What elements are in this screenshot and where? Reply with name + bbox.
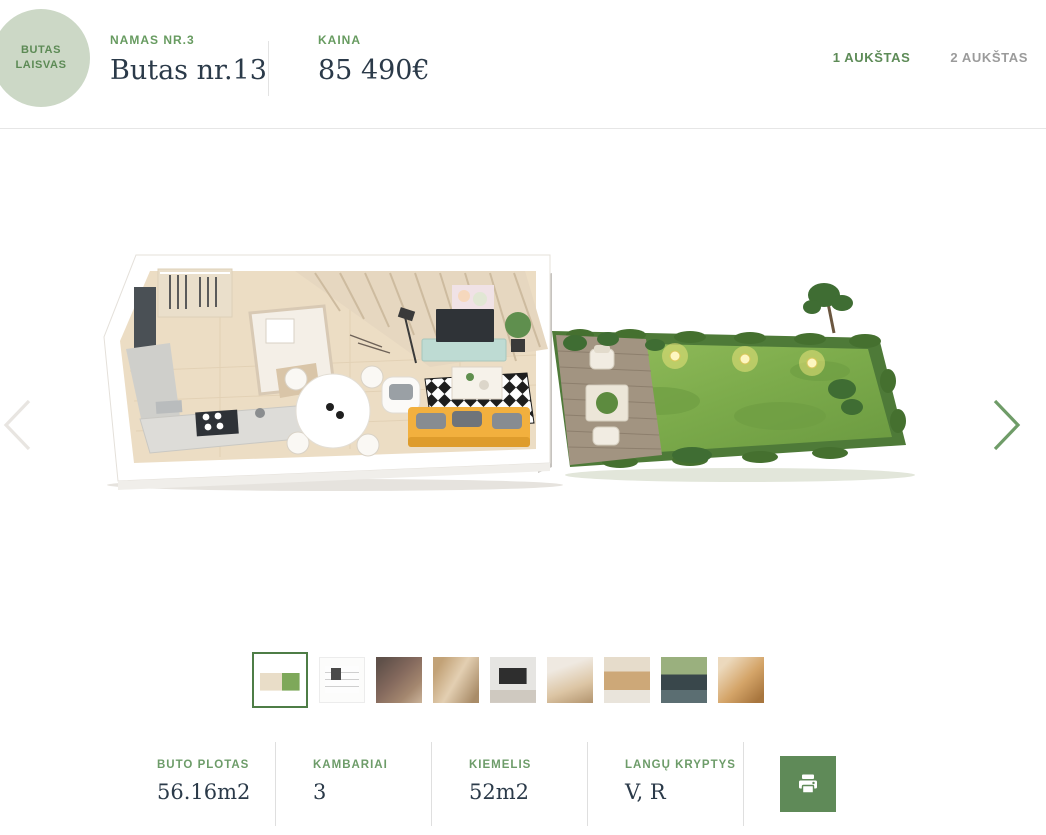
stats-row: BUTO PLOTAS 56.16m2 KAMBARIAI 3 KIEMELIS…	[120, 742, 1046, 826]
garden	[552, 283, 906, 468]
price-block: KAINA 85 490€	[318, 33, 430, 86]
stat-value: V, R	[625, 780, 743, 804]
carousel	[0, 129, 1046, 649]
header-divider	[268, 41, 269, 96]
prev-slide-button[interactable]	[0, 397, 34, 453]
stat-value: 52m2	[469, 780, 587, 804]
stat-label: KIEMELIS	[469, 759, 587, 771]
stat-label: BUTO PLOTAS	[157, 759, 275, 771]
wardrobe	[158, 269, 232, 317]
thumbnail-2[interactable]	[319, 657, 365, 703]
chevron-right-icon	[990, 397, 1024, 453]
thumbnail-6[interactable]	[547, 657, 593, 703]
stat-kambariai: KAMBARIAI 3	[276, 742, 432, 826]
thumbnail-strip	[0, 649, 1046, 711]
garden-deck	[556, 335, 662, 465]
house-label: NAMAS NR.3	[110, 33, 267, 47]
thumbnail-1-image	[258, 658, 302, 702]
floorplan-image	[100, 251, 915, 491]
stat-label: KAMBARIAI	[313, 759, 431, 771]
thumbnail-9[interactable]	[718, 657, 764, 703]
thumbnail-7[interactable]	[604, 657, 650, 703]
dining-table	[285, 366, 383, 456]
status-badge: BUTASLAISVAS	[0, 9, 90, 107]
floorplan-3d-render	[100, 251, 915, 491]
stat-kiemelis: KIEMELIS 52m2	[432, 742, 588, 826]
thumbnail-3[interactable]	[376, 657, 422, 703]
price-label: KAINA	[318, 33, 430, 47]
thumbnail-4[interactable]	[433, 657, 479, 703]
stat-value: 56.16m2	[157, 780, 275, 804]
next-slide-button[interactable]	[990, 397, 1024, 453]
apartment-floorplan	[104, 255, 550, 490]
chevron-left-icon	[0, 397, 34, 453]
stat-value: 3	[313, 780, 431, 804]
floor-tabs: 1 AUKŠTAS 2 AUKŠTAS	[833, 50, 1028, 65]
status-badge-text: BUTASLAISVAS	[15, 43, 66, 73]
page-title: Butas nr.13	[110, 55, 267, 86]
price-value: 85 490€	[318, 55, 430, 86]
page-header: BUTASLAISVAS NAMAS NR.3 Butas nr.13 KAIN…	[0, 0, 1046, 129]
printer-icon	[796, 772, 820, 796]
thumbnail-8[interactable]	[661, 657, 707, 703]
stat-label: LANGŲ KRYPTYS	[625, 759, 743, 771]
apartment-title-block: NAMAS NR.3 Butas nr.13	[110, 33, 267, 86]
thumbnail-1-selected[interactable]	[252, 652, 308, 708]
stat-buto-plotas: BUTO PLOTAS 56.16m2	[120, 742, 276, 826]
tab-floor-1[interactable]: 1 AUKŠTAS	[833, 50, 911, 65]
tab-floor-2[interactable]: 2 AUKŠTAS	[950, 50, 1028, 65]
print-button[interactable]	[780, 756, 836, 812]
sofa	[408, 407, 530, 447]
thumbnail-5[interactable]	[490, 657, 536, 703]
coffee-table	[452, 367, 502, 399]
stat-langu-kryptys: LANGŲ KRYPTYS V, R	[588, 742, 744, 826]
